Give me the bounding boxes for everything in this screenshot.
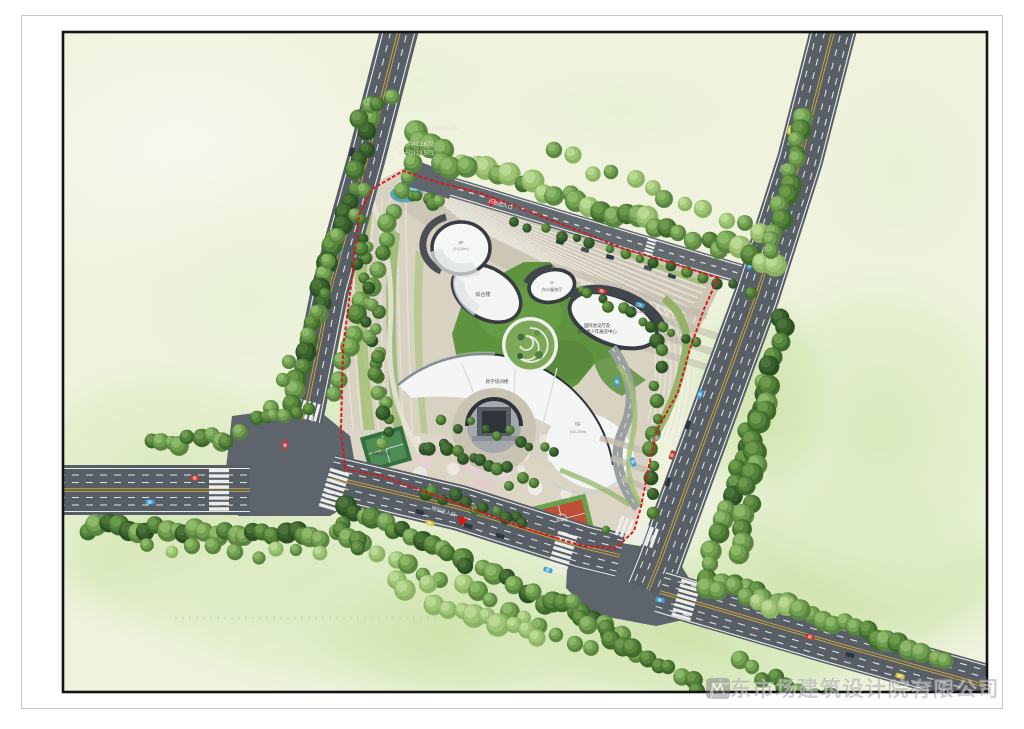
svg-text:(18-29m): (18-29m)	[570, 429, 587, 434]
svg-text:办公服务厅: 办公服务厅	[542, 286, 563, 293]
svg-text:篮球场: 篮球场	[556, 517, 568, 522]
svg-text:国际青少年展览中心: 国际青少年展览中心	[577, 328, 617, 335]
svg-text:X=60413.672: X=60413.672	[398, 142, 435, 148]
svg-text:(19-24m): (19-24m)	[631, 310, 646, 314]
svg-text:教学培训楼: 教学培训楼	[486, 378, 509, 385]
svg-text:网球运动场: 网球运动场	[372, 451, 391, 456]
svg-text:5F: 5F	[550, 280, 555, 285]
svg-text:2F: 2F	[458, 240, 464, 245]
svg-text:5F: 5F	[575, 422, 581, 428]
svg-text:综合楼: 综合楼	[475, 291, 490, 298]
svg-text:(19-26m): (19-26m)	[453, 247, 469, 251]
svg-text:Y=60313.571: Y=60313.571	[398, 151, 435, 157]
svg-text:国际会议厅及: 国际会议厅及	[584, 322, 611, 329]
svg-text:广东市场建筑设计院有限公司: 广东市场建筑设计院有限公司	[708, 677, 1001, 701]
svg-text:194110.031: 194110.031	[428, 126, 460, 132]
svg-text:3F: 3F	[636, 303, 641, 308]
